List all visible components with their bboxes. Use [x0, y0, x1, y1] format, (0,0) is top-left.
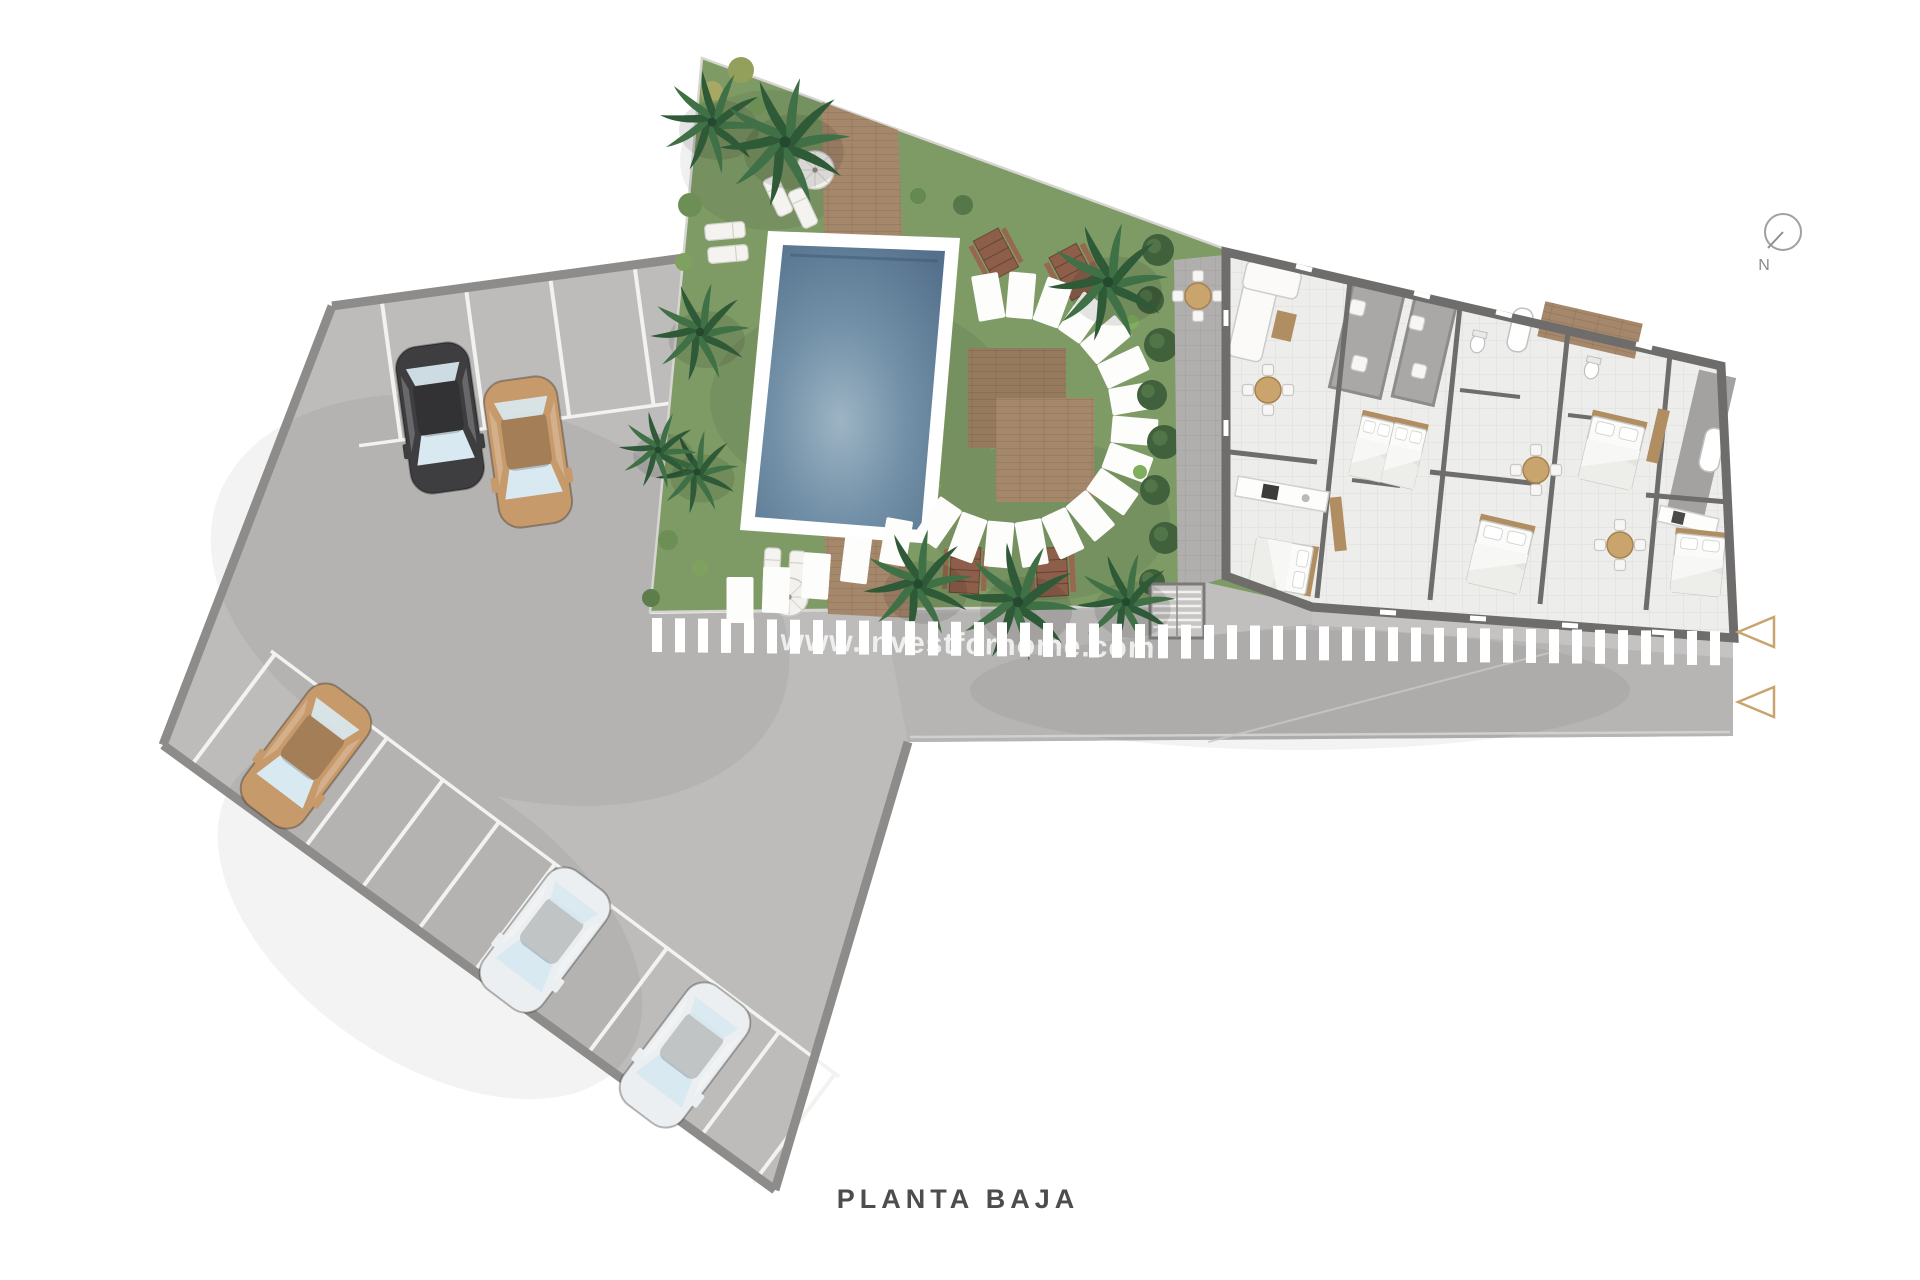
- garden-bush: [910, 188, 926, 204]
- crosswalk-stripe: [721, 619, 731, 653]
- north-indicator: N: [1758, 214, 1801, 274]
- chair: [1595, 540, 1606, 551]
- crosswalk-stripe: [1227, 625, 1237, 659]
- site-plan-page: www.investforhome.com N PLANTA BAJA: [0, 0, 1920, 1280]
- crosswalk-stripe: [1388, 627, 1398, 661]
- garden-bush: [675, 253, 693, 271]
- entrance-arrow-1: [1738, 617, 1774, 647]
- crosswalk-stripe: [675, 618, 685, 652]
- crosswalk-stripe: [1365, 627, 1375, 661]
- crosswalk-stripe: [1572, 630, 1582, 664]
- crosswalk-stripe: [1457, 628, 1467, 662]
- crosswalk-stripe: [767, 619, 777, 653]
- crosswalk-stripe: [1710, 631, 1720, 665]
- stepping-stone: [801, 552, 831, 600]
- palm-trunk: [1013, 597, 1023, 607]
- crosswalk-stripe: [1526, 629, 1536, 663]
- crosswalk-stripe: [1204, 625, 1214, 659]
- stepping-stone: [762, 567, 791, 614]
- palm-trunk: [655, 447, 662, 454]
- crosswalk-stripe: [1273, 626, 1283, 660]
- chair: [1511, 465, 1522, 476]
- garden-bush: [692, 560, 708, 576]
- round-table: [1185, 283, 1211, 309]
- chair: [1531, 485, 1542, 496]
- chair: [1531, 445, 1542, 456]
- palm-trunk: [708, 118, 717, 127]
- round-table: [1607, 532, 1633, 558]
- crosswalk-stripe: [1342, 627, 1352, 661]
- crosswalk-stripe: [1503, 629, 1513, 663]
- garden-bush: [678, 193, 702, 217]
- crosswalk-stripe: [1641, 630, 1651, 664]
- chair: [1243, 385, 1254, 396]
- crosswalk-stripe: [1595, 630, 1605, 664]
- palm-trunk: [913, 579, 922, 588]
- stepping-stone: [727, 577, 754, 623]
- stepping-stone: [1005, 271, 1036, 319]
- crosswalk-stripe: [1434, 628, 1444, 662]
- site-plan-svg: www.investforhome.com N PLANTA BAJA: [0, 0, 1920, 1280]
- crosswalk-stripe: [1687, 631, 1697, 665]
- garden-bush: [658, 530, 678, 550]
- deck-terrace-2: [996, 398, 1094, 502]
- crosswalk-stripe: [1181, 625, 1191, 659]
- hedge-bush-highlight: [1141, 384, 1155, 398]
- crosswalk-stripe: [698, 619, 708, 653]
- chair: [1173, 291, 1184, 302]
- hedge-bush-highlight: [1149, 333, 1164, 348]
- chair: [1263, 405, 1274, 416]
- crosswalk-stripe: [1319, 626, 1329, 660]
- palm-trunk: [1122, 598, 1131, 607]
- round-table: [1255, 377, 1281, 403]
- stepping-stone: [840, 536, 872, 585]
- garden-bush: [1133, 465, 1147, 479]
- chair: [1615, 520, 1626, 531]
- round-table: [1523, 457, 1549, 483]
- bed-6: [1669, 527, 1727, 596]
- chair: [1635, 540, 1646, 551]
- chair: [1263, 365, 1274, 376]
- compass-label: N: [1758, 257, 1770, 274]
- crosswalk-stripe: [1618, 630, 1628, 664]
- crosswalk-stripe: [652, 618, 662, 652]
- chair: [1283, 385, 1294, 396]
- chair: [1551, 465, 1562, 476]
- garden-bush: [953, 195, 973, 215]
- palm-trunk: [779, 136, 790, 147]
- crosswalk-stripe: [1411, 628, 1421, 662]
- pool-garden: [619, 57, 1312, 662]
- crosswalk-stripe: [1549, 629, 1559, 663]
- palm-trunk: [1103, 277, 1113, 287]
- hedge-bush-highlight: [1154, 527, 1168, 541]
- crosswalk-stripe: [1664, 631, 1674, 665]
- crosswalk-stripe: [1296, 626, 1306, 660]
- palm-trunk: [693, 468, 700, 475]
- compass-needle: [1768, 232, 1783, 248]
- garden-bush: [642, 589, 660, 607]
- crosswalk-stripe: [1480, 628, 1490, 662]
- crosswalk-stripe: [1158, 624, 1168, 658]
- hedge-bush-highlight: [1144, 479, 1158, 493]
- entrance-arrow-2: [1738, 687, 1774, 717]
- crosswalk-stripe: [1250, 626, 1260, 660]
- plan-title: PLANTA BAJA: [837, 1184, 1080, 1214]
- chair: [1193, 271, 1204, 282]
- palm-trunk: [696, 328, 705, 337]
- crosswalk-stripe: [744, 619, 754, 653]
- chair: [1193, 311, 1204, 322]
- pool-water: [755, 245, 945, 530]
- hedge-bush-highlight: [1152, 430, 1167, 445]
- apartment-building: [1226, 252, 1736, 658]
- chair: [1615, 560, 1626, 571]
